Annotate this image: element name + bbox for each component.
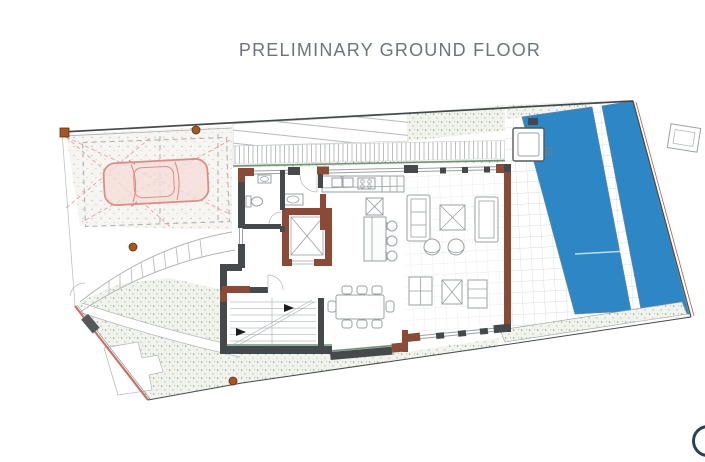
poolside-structure [667, 124, 700, 152]
coffee-table [442, 280, 462, 304]
tree-marker [129, 243, 137, 251]
pool-terrace [500, 100, 701, 342]
sofa-left [407, 195, 430, 241]
dining-table [336, 295, 384, 319]
house [220, 164, 511, 360]
carport [66, 126, 232, 230]
kitchen-island [364, 217, 386, 261]
window-bench [468, 280, 487, 308]
car-top-view-icon [103, 156, 209, 207]
partial-logo-icon [694, 427, 705, 456]
coffee-table [440, 205, 465, 230]
column-marker [192, 126, 200, 134]
square-table [409, 277, 432, 305]
corner-column-marker [60, 128, 69, 137]
bar-stools [387, 221, 397, 261]
floor-plan-page: PRELIMINARY GROUND FLOOR [0, 0, 705, 462]
tree-marker [229, 377, 237, 385]
entrance-walkway [233, 104, 530, 168]
floor-plan-drawing [0, 0, 705, 462]
sofa-right [475, 197, 498, 242]
oven-tower [366, 198, 383, 215]
